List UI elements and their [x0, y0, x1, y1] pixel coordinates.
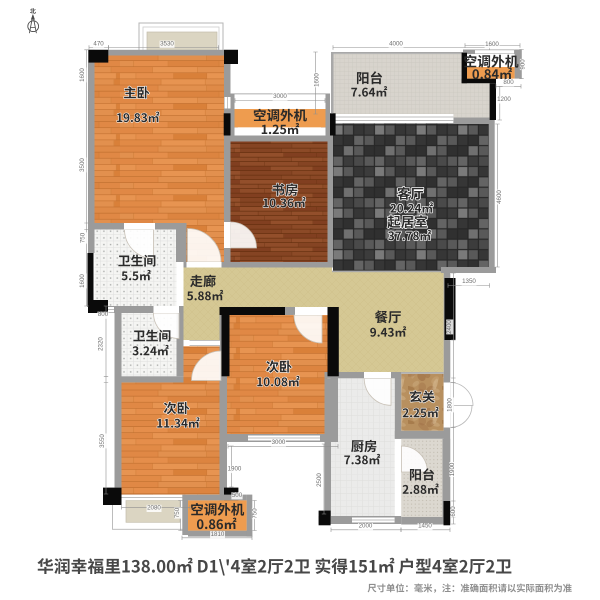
svg-text:2500: 2500 — [316, 473, 323, 487]
svg-text:800: 800 — [98, 311, 109, 318]
svg-text:750: 750 — [174, 507, 181, 518]
svg-text:1800: 1800 — [447, 398, 454, 412]
svg-text:750: 750 — [80, 232, 87, 243]
svg-text:3000: 3000 — [273, 93, 287, 100]
svg-text:2400: 2400 — [446, 320, 453, 334]
svg-text:3500: 3500 — [79, 158, 86, 172]
svg-text:3000: 3000 — [272, 439, 286, 446]
svg-text:1350: 1350 — [462, 278, 476, 285]
svg-text:1200: 1200 — [497, 96, 511, 103]
svg-text:3530: 3530 — [160, 40, 174, 47]
svg-text:2080: 2080 — [147, 504, 161, 511]
svg-text:1900: 1900 — [449, 462, 456, 476]
svg-text:750: 750 — [252, 508, 259, 519]
svg-text:1810: 1810 — [211, 531, 225, 538]
svg-text:1900: 1900 — [228, 466, 242, 473]
svg-text:2000: 2000 — [359, 523, 373, 530]
svg-text:1600: 1600 — [485, 41, 499, 48]
svg-text:4600: 4600 — [496, 190, 503, 204]
svg-text:1450: 1450 — [418, 523, 432, 530]
svg-text:600: 600 — [450, 506, 457, 517]
svg-text:470: 470 — [93, 40, 104, 47]
svg-text:1600: 1600 — [314, 73, 321, 87]
svg-text:800: 800 — [503, 79, 514, 86]
svg-text:4000: 4000 — [389, 40, 403, 47]
svg-text:2320: 2320 — [98, 337, 105, 351]
svg-text:500: 500 — [232, 492, 243, 499]
svg-text:1600: 1600 — [79, 274, 86, 288]
svg-text:900: 900 — [520, 59, 527, 70]
svg-text:3550: 3550 — [99, 434, 106, 448]
svg-text:1600: 1600 — [79, 68, 86, 82]
